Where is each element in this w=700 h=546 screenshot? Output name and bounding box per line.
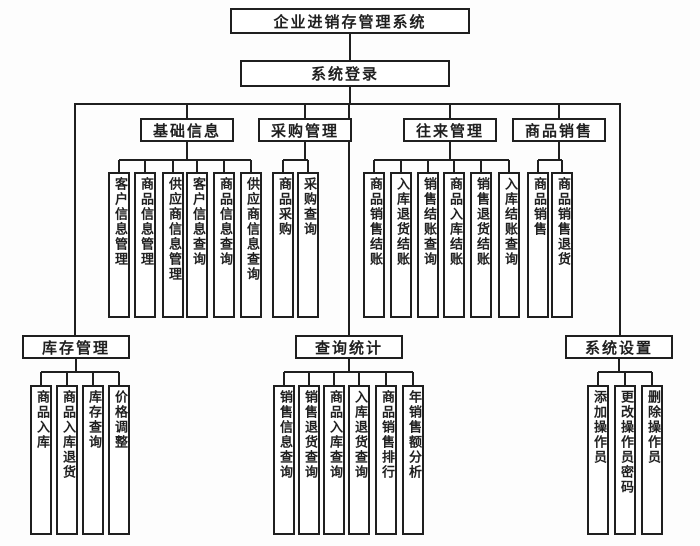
connector-basic-info — [119, 142, 251, 172]
leaf-change-operator-password: 更改操作员密码 — [614, 385, 636, 535]
group-header-query-stats: 查询统计 — [295, 335, 403, 359]
leaf-product-inbound: 商品入库 — [30, 385, 52, 535]
leaf-annual-sales-analysis: 年销售额分析 — [402, 385, 424, 535]
connector-contacts-mgmt — [374, 142, 509, 172]
group-header-basic-info: 基础信息 — [140, 118, 234, 142]
leaf-sales-settlement: 商品销售结账 — [363, 172, 385, 318]
group-header-system-settings: 系统设置 — [565, 335, 673, 359]
org-chart: 企业进销存管理系统 系统登录 基础信息 采购管理 往来管理 商品销售 客户信息管… — [0, 0, 700, 546]
leaf-supplier-info-query: 供应商信息查询 — [240, 172, 262, 318]
leaf-purchase-query: 采购查询 — [297, 172, 319, 318]
leaf-product-inbound-query: 商品入库查询 — [323, 385, 345, 535]
leaf-inbound-return-settlement: 入库退货结账 — [390, 172, 412, 318]
leaf-product-info-query: 商品信息查询 — [213, 172, 235, 318]
leaf-sales-return-settlement: 销售退货结账 — [470, 172, 492, 318]
group-header-inventory-mgmt: 库存管理 — [22, 335, 130, 359]
connector-query-stats — [284, 359, 413, 385]
leaf-price-adjustment: 价格调整 — [108, 385, 130, 535]
leaf-product-info-mgmt: 商品信息管理 — [134, 172, 156, 318]
connector-purchase-mgmt — [283, 142, 308, 172]
leaf-customer-info-query: 客户信息查询 — [186, 172, 208, 318]
connector-system-settings — [598, 359, 652, 385]
leaf-sales-return-query: 销售退货查询 — [298, 385, 320, 535]
group-header-product-sales: 商品销售 — [512, 118, 606, 142]
leaf-add-operator: 添加操作员 — [587, 385, 609, 535]
leaf-sales-settlement-query: 销售结账查询 — [417, 172, 439, 318]
group-header-purchase-mgmt: 采购管理 — [258, 118, 352, 142]
connector-inventory-mgmt — [41, 359, 119, 385]
leaf-supplier-info-mgmt: 供应商信息管理 — [162, 172, 184, 318]
leaf-product-inbound-return: 商品入库退货 — [56, 385, 78, 535]
group-header-contacts-mgmt: 往来管理 — [403, 118, 497, 142]
leaf-inventory-query: 库存查询 — [82, 385, 104, 535]
leaf-inbound-return-query: 入库退货查询 — [348, 385, 370, 535]
leaf-delete-operator: 删除操作员 — [641, 385, 663, 535]
leaf-product-purchase: 商品采购 — [272, 172, 294, 318]
leaf-product-inbound-settlement: 商品入库结账 — [443, 172, 465, 318]
login-node: 系统登录 — [240, 60, 450, 87]
leaf-sales-info-query: 销售信息查询 — [273, 385, 295, 535]
leaf-product-sales-ranking: 商品销售排行 — [375, 385, 397, 535]
root-node: 企业进销存管理系统 — [230, 8, 470, 34]
leaf-customer-info-mgmt: 客户信息管理 — [108, 172, 130, 318]
leaf-inbound-settlement-query: 入库结账查询 — [498, 172, 520, 318]
leaf-product-sales: 商品销售 — [527, 172, 549, 318]
leaf-product-sales-return: 商品销售退货 — [551, 172, 573, 318]
connector-product-sales — [538, 142, 562, 172]
